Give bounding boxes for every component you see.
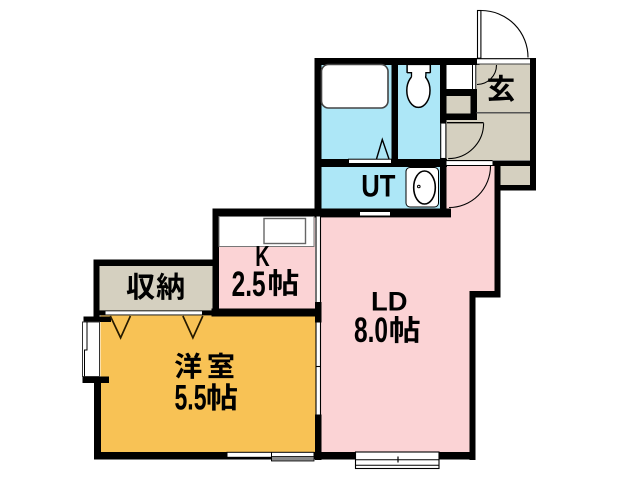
svg-text:UT: UT — [361, 167, 395, 203]
svg-text:2.5: 2.5 — [232, 265, 266, 304]
svg-text:5.5: 5.5 — [175, 379, 207, 418]
svg-text:8.0: 8.0 — [354, 311, 388, 350]
